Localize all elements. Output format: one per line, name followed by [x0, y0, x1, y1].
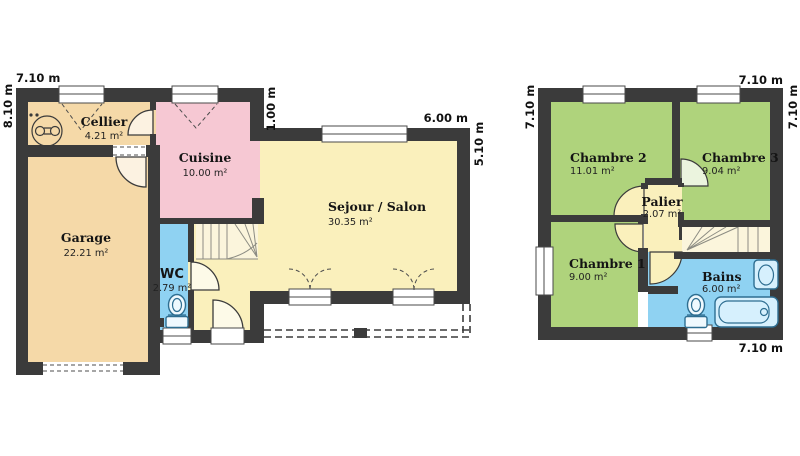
- room-sejour: [256, 140, 458, 291]
- dimension-label-upper-right: 7.10 m: [786, 85, 800, 129]
- floorplan-image: Cellier 4.21 m² Cuisine 10.00 m² Garage …: [0, 0, 800, 456]
- dimension-label-upper-bottom-right: 7.10 m: [739, 341, 783, 355]
- room-label-cuisine: Cuisine: [179, 150, 232, 165]
- floorplan-page: Cellier 4.21 m² Cuisine 10.00 m² Garage …: [0, 0, 800, 456]
- room-label-bains: Bains: [702, 269, 742, 284]
- room-area-chambre3: 9.04 m²: [702, 166, 740, 177]
- dimension-label-upper-top-right: 7.10 m: [739, 73, 783, 87]
- room-label-chambre2: Chambre 2: [570, 150, 647, 165]
- room-area-palier: 2.07 m²: [643, 209, 681, 220]
- dimension-label-upper-left: 7.10 m: [523, 85, 537, 129]
- room-label-wc: WC: [160, 267, 184, 282]
- washbasin-icon: [754, 260, 778, 289]
- room-label-chambre1: Chambre 1: [569, 256, 646, 271]
- room-label-sejour: Sejour / Salon: [328, 199, 426, 214]
- stairwell-upper: [682, 227, 770, 252]
- room-label-palier: Palier: [641, 194, 683, 209]
- dimension-label-offset: 1.00 m: [264, 87, 278, 131]
- bathtub-icon: [715, 297, 778, 327]
- toilet-icon: [166, 295, 188, 328]
- room-garage: [28, 157, 148, 362]
- room-area-cellier: 4.21 m²: [85, 131, 123, 142]
- entry-door-leaf: [211, 328, 244, 344]
- dimension-label-sejour-top: 6.00 m: [424, 111, 468, 125]
- room-label-chambre3: Chambre 3: [702, 150, 779, 165]
- dimension-label-left: 8.10 m: [1, 84, 15, 128]
- upper-floor-plan: Chambre 2 11.01 m² Chambre 3 9.04 m² Cha…: [523, 73, 800, 355]
- room-area-cuisine: 10.00 m²: [183, 168, 228, 179]
- toilet-icon: [685, 295, 707, 328]
- terrace-outline: [264, 304, 470, 338]
- room-area-chambre2: 11.01 m²: [570, 166, 615, 177]
- room-area-garage: 22.21 m²: [64, 248, 109, 259]
- room-area-wc: 2.79 m²: [153, 283, 191, 294]
- room-label-cellier: Cellier: [81, 114, 128, 129]
- dimension-label-top: 7.10 m: [16, 71, 60, 85]
- room-area-bains: 6.00 m²: [702, 284, 740, 295]
- terrace-post: [354, 328, 367, 338]
- room-label-garage: Garage: [61, 230, 111, 245]
- room-area-sejour: 30.35 m²: [328, 217, 373, 228]
- dimension-label-sejour-right: 5.10 m: [472, 122, 486, 166]
- room-area-chambre1: 9.00 m²: [569, 272, 607, 283]
- garage-door-dashes: [43, 365, 123, 371]
- ground-floor-plan: Cellier 4.21 m² Cuisine 10.00 m² Garage …: [1, 71, 486, 375]
